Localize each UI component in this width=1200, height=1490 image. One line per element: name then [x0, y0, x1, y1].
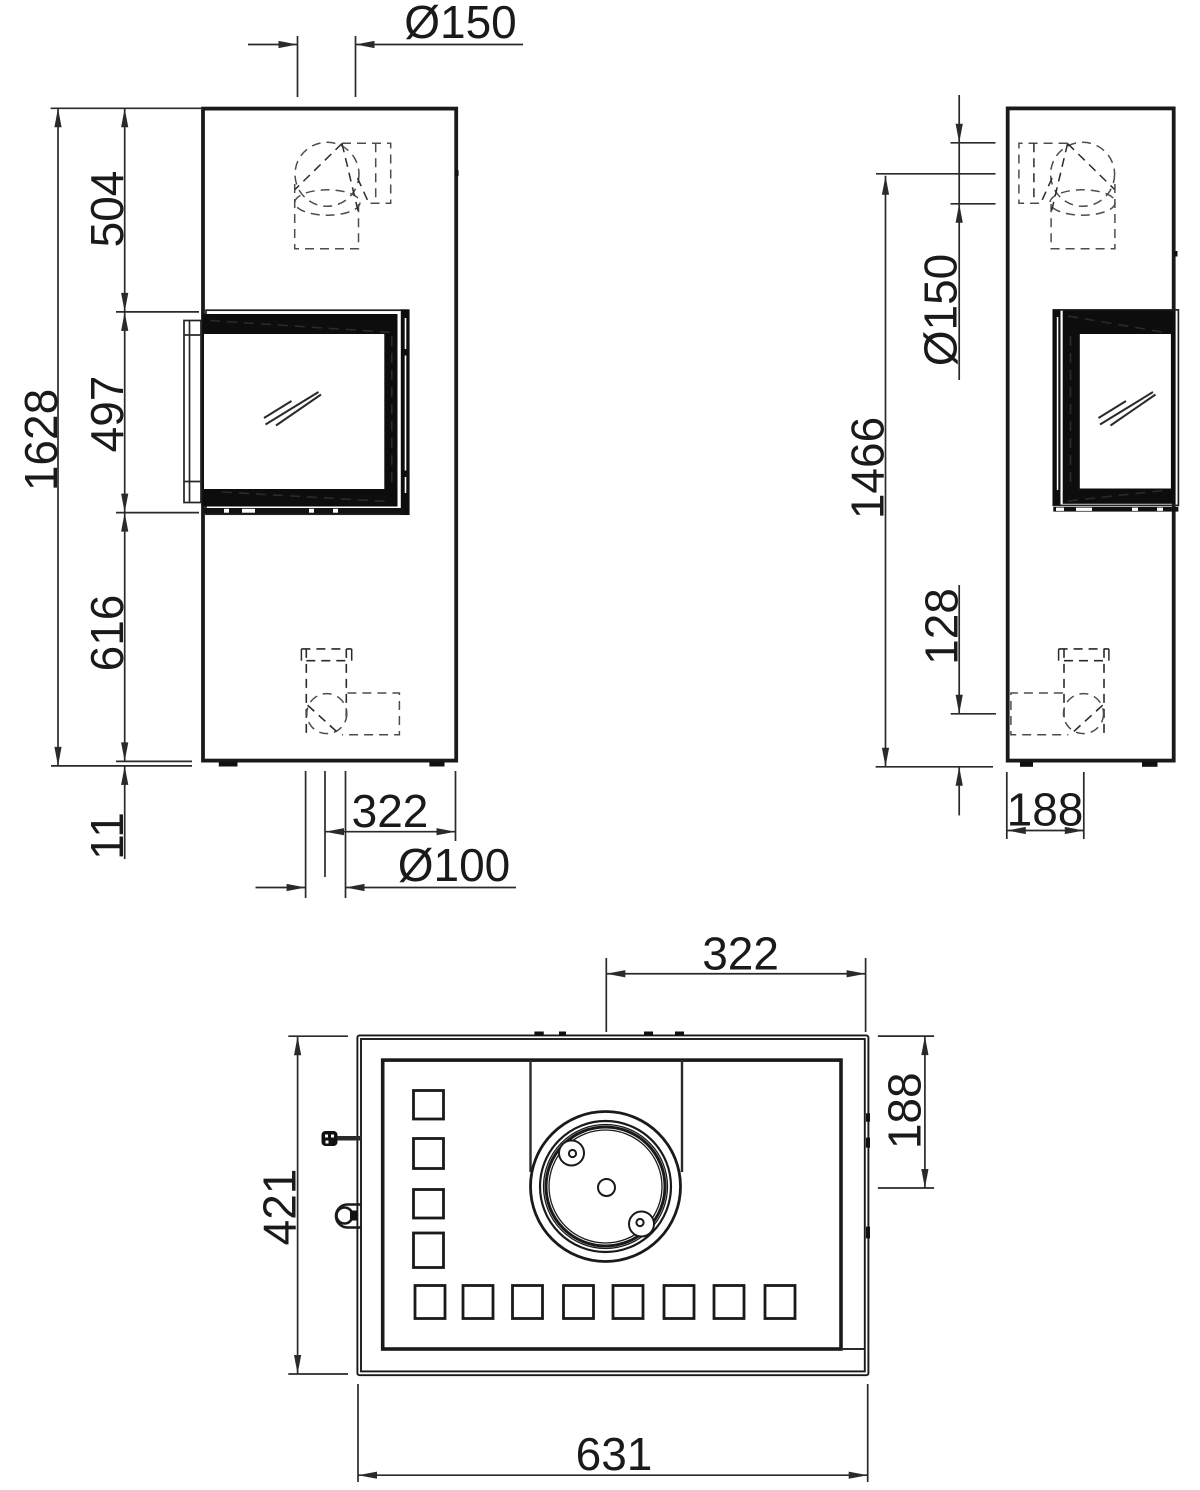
- svg-text:Ø150: Ø150: [404, 0, 517, 48]
- svg-text:497: 497: [81, 376, 133, 453]
- svg-text:322: 322: [702, 928, 779, 980]
- svg-text:504: 504: [81, 171, 133, 248]
- svg-text:421: 421: [254, 1169, 306, 1246]
- svg-text:Ø150: Ø150: [915, 254, 967, 367]
- svg-text:616: 616: [81, 595, 133, 672]
- svg-text:128: 128: [916, 588, 968, 665]
- svg-text:631: 631: [576, 1428, 653, 1480]
- svg-text:188: 188: [1007, 784, 1084, 836]
- svg-text:11: 11: [81, 812, 133, 860]
- svg-text:322: 322: [352, 785, 429, 837]
- svg-text:1628: 1628: [15, 389, 67, 491]
- svg-text:188: 188: [879, 1072, 931, 1149]
- svg-text:Ø100: Ø100: [398, 839, 511, 891]
- svg-text:1466: 1466: [842, 417, 894, 519]
